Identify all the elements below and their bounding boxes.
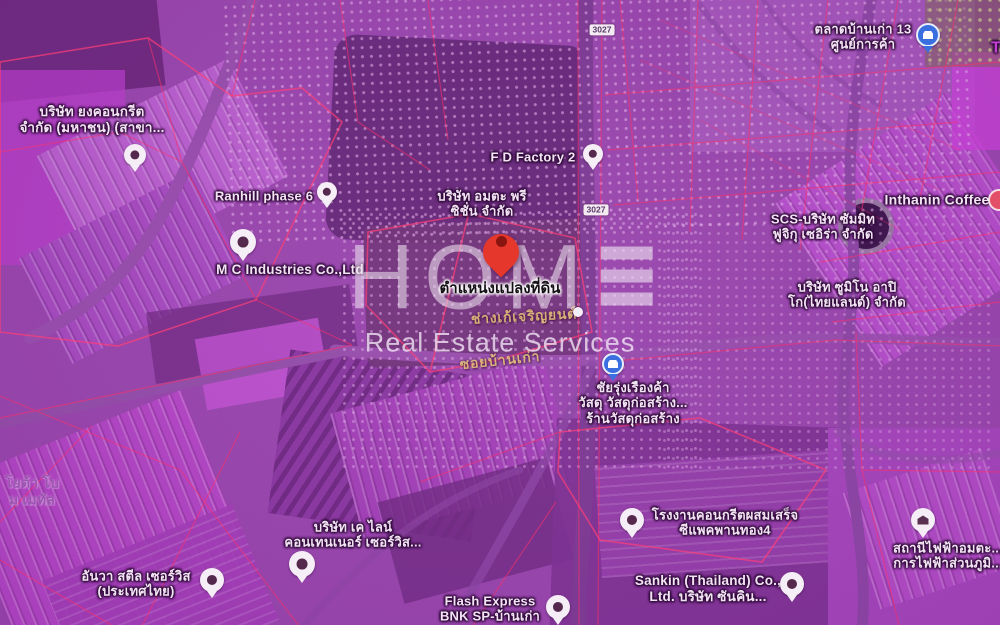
mc-industries-pin[interactable]: [230, 229, 256, 255]
chang-ke-pin[interactable]: [573, 307, 583, 317]
poi-pin-icon: [200, 568, 224, 592]
map-canvas[interactable]: บริษัท ยงคอนกรีตจำกัด (มหาชน) (สาขา...Ra…: [0, 0, 1000, 625]
poi-pin-icon: [583, 144, 603, 164]
fd-factory-pin[interactable]: [583, 144, 603, 164]
poi-pin-icon: [317, 182, 337, 202]
dot-pin-icon: [573, 307, 583, 317]
pin-tail: [130, 165, 140, 172]
poi-pin-icon: [289, 551, 315, 577]
inthanin-pin[interactable]: [988, 189, 1000, 211]
building-pin-icon: [911, 508, 935, 532]
red-pin-hole: [496, 236, 507, 247]
poi-pin-icon: [230, 229, 256, 255]
pin-tail: [787, 595, 797, 602]
cpac-pin[interactable]: [620, 508, 644, 532]
pin-tail: [322, 201, 332, 208]
plot-position-label: ตำแหน่งแปลงที่ดิน: [440, 276, 561, 300]
pin-tail: [238, 254, 248, 261]
pin-tail: [923, 46, 933, 53]
chai-store-pin[interactable]: [602, 353, 624, 375]
storefront-icon: [923, 31, 933, 39]
market-cart-pin[interactable]: [916, 23, 940, 47]
storefront-icon: [608, 360, 618, 368]
pin-tail: [918, 531, 928, 538]
poi-pin-icon: [780, 572, 804, 596]
map-pins-layer: [0, 0, 1000, 625]
ranhill-pin[interactable]: [317, 182, 337, 202]
building-icon: [918, 516, 929, 525]
pin-tail: [207, 591, 217, 598]
poi-pin-icon: [546, 595, 570, 619]
pin-tail: [297, 576, 307, 583]
pin-tail: [553, 618, 563, 625]
anwa-pin[interactable]: [200, 568, 224, 592]
blue-pin-icon: [602, 353, 624, 375]
pin-tail: [627, 531, 637, 538]
k-line-pin[interactable]: [289, 551, 315, 577]
blue-pin-icon: [916, 23, 940, 47]
pin-tail: [608, 374, 618, 381]
flash-pin[interactable]: [546, 595, 570, 619]
red-dot-pin-icon: [988, 189, 1000, 211]
poi-pin-icon: [620, 508, 644, 532]
power-station-pin[interactable]: [911, 508, 935, 532]
sankin-pin[interactable]: [780, 572, 804, 596]
poi-pin-icon: [124, 144, 146, 166]
yong-concrete-pin[interactable]: [124, 144, 146, 166]
pin-tail: [588, 163, 598, 170]
